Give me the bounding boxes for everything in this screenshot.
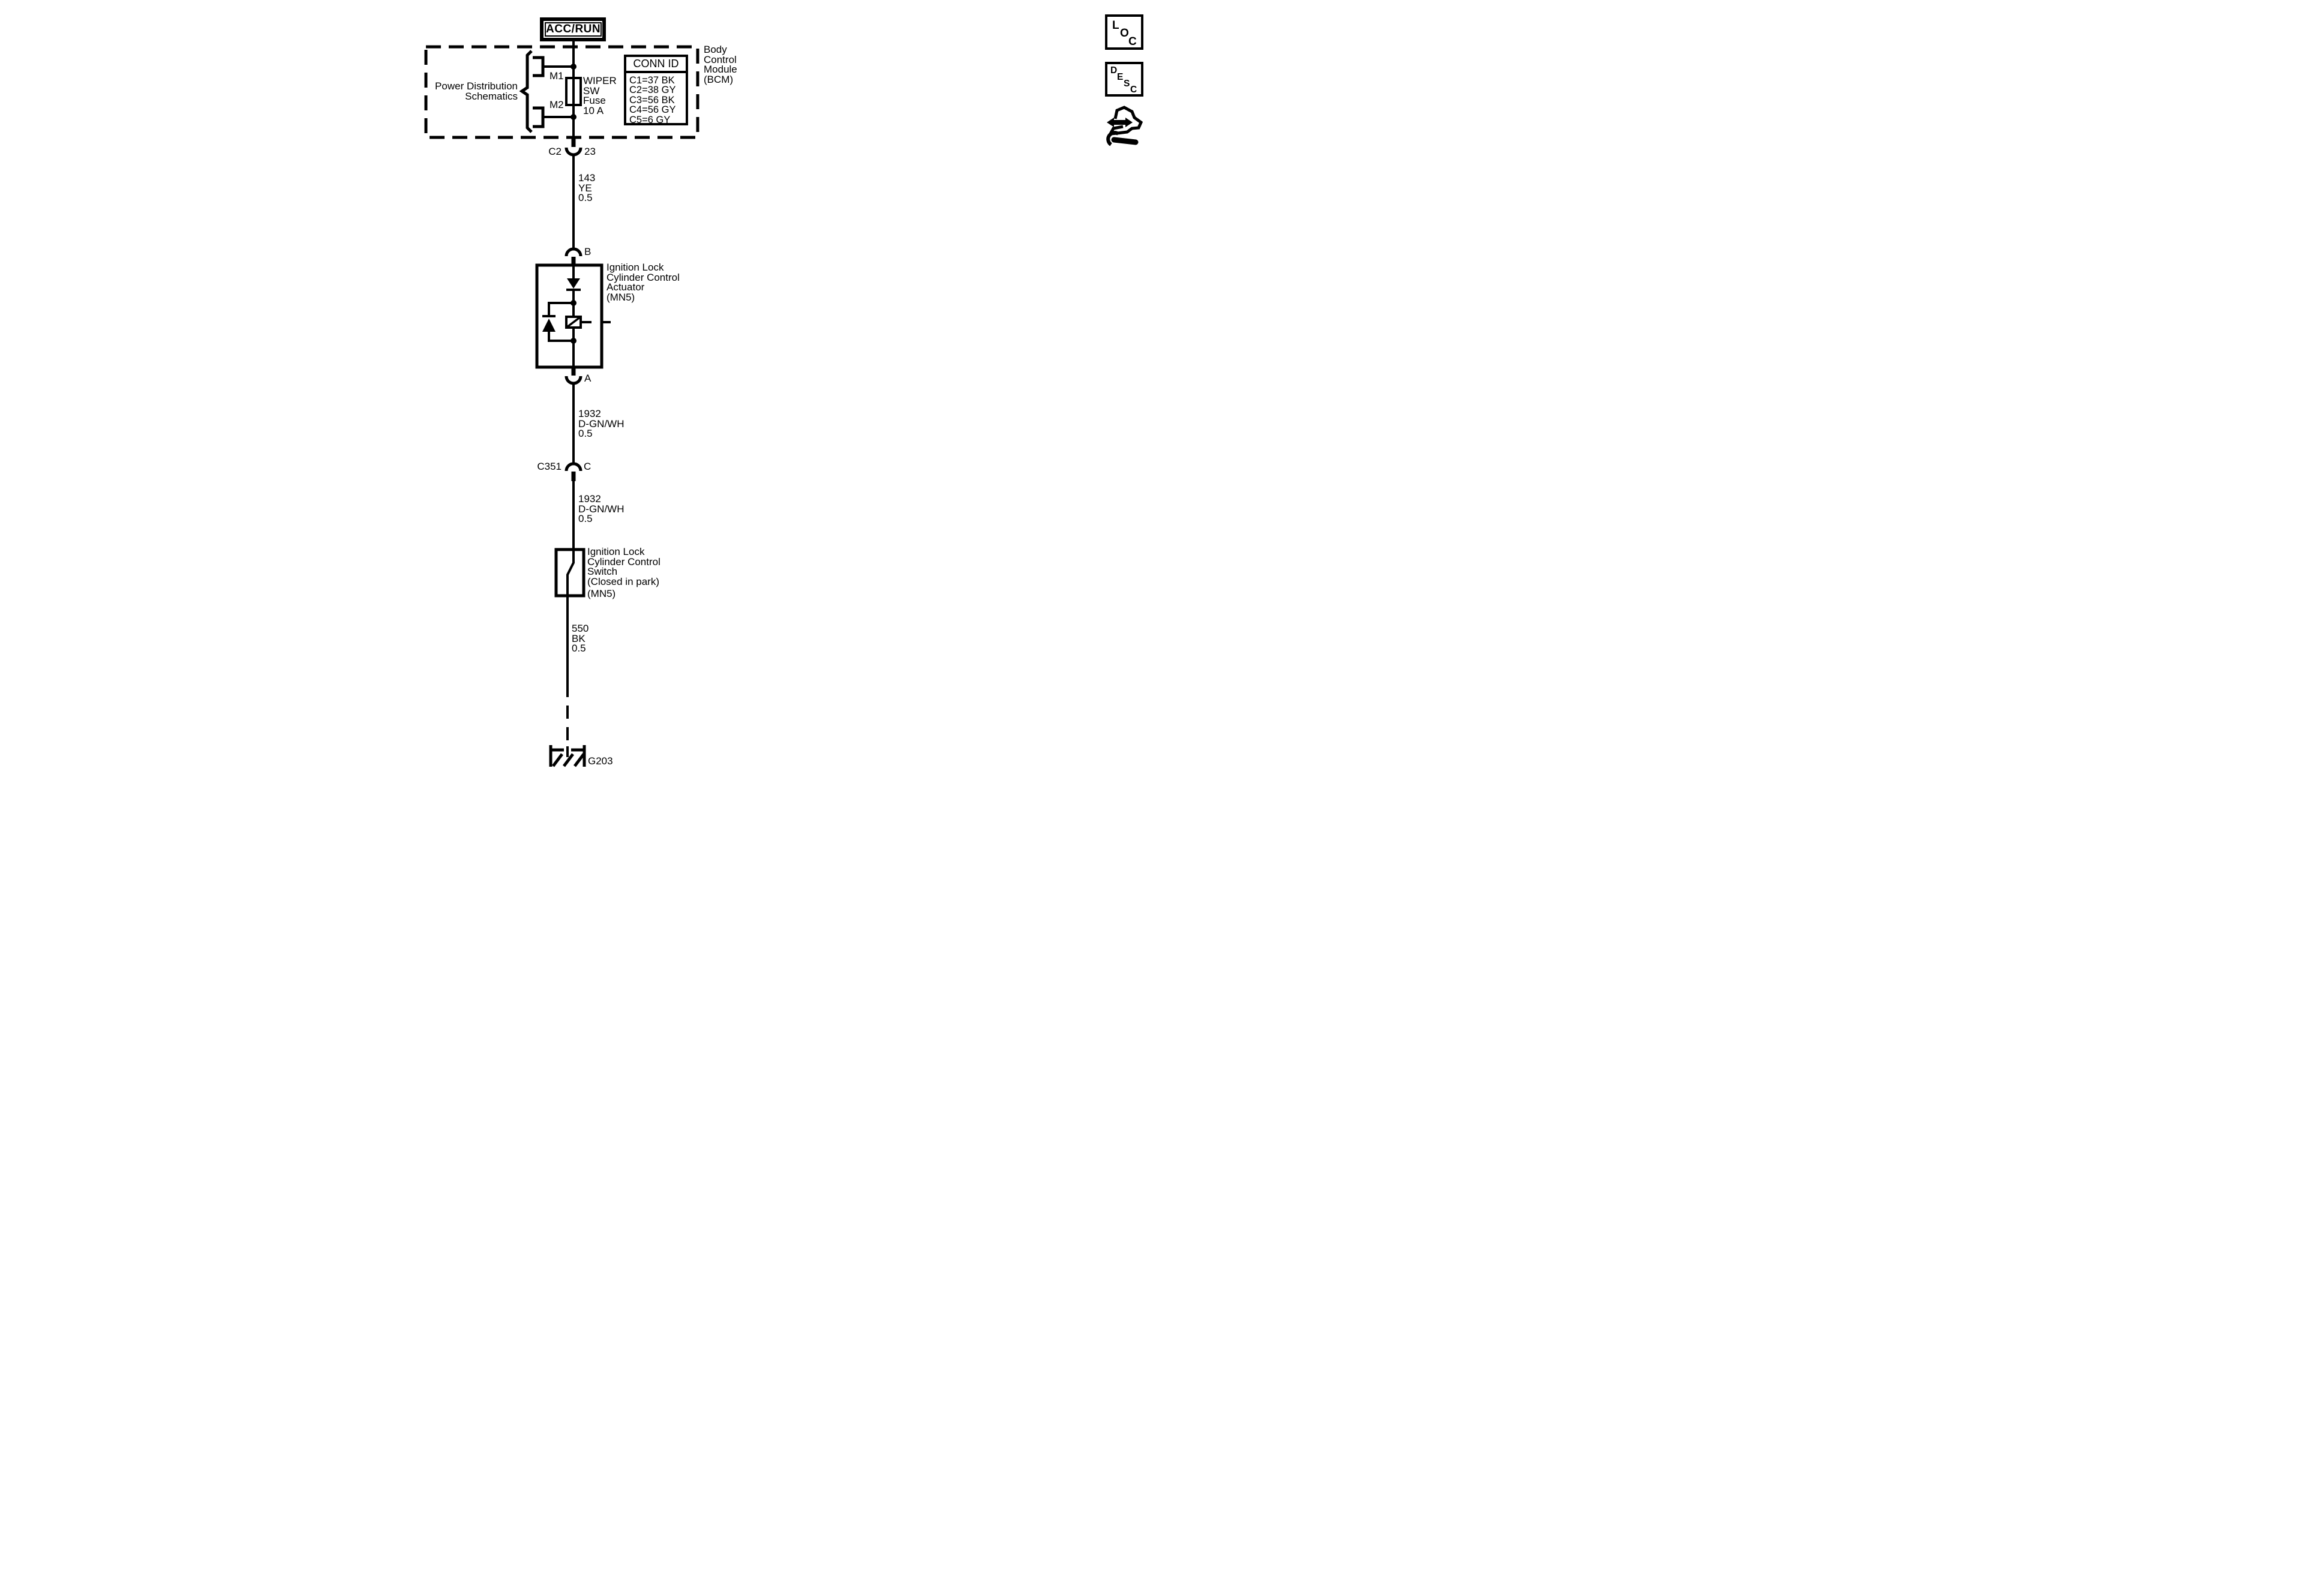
conn-id-row: C3=56 BK [629, 95, 686, 105]
desc-letter: E [1117, 72, 1123, 83]
switch-mn5-label: (MN5) [587, 589, 615, 599]
switch-label: Ignition Lock Cylinder Control Switch (C… [587, 547, 660, 587]
bcm-name-label: Body Control Module (BCM) [704, 45, 737, 85]
wire-143-label: 143 YE 0.5 [578, 173, 595, 203]
connector-c2-pin-label: 23 [584, 146, 596, 157]
wire-gauge: 0.5 [572, 644, 588, 654]
wiring-diagram-page: ACC/RUN Power Distribution Schematics M1… [0, 0, 1162, 786]
conn-id-table: CONN ID C1=37 BK C2=38 GY C3=56 BK C4=56… [624, 55, 688, 125]
wire-550-label: 550 BK 0.5 [572, 624, 588, 654]
desc-letter: S [1124, 79, 1130, 89]
power-source-label: ACC/RUN [545, 22, 602, 37]
conn-id-row: C1=37 BK [629, 76, 686, 85]
connector-c351-symbol [566, 464, 581, 481]
conn-id-row: C5=6 GY [629, 115, 686, 125]
connector-a-symbol [566, 367, 581, 383]
connector-c351-pin-label: C [584, 461, 591, 472]
actuator-box [537, 265, 611, 367]
fuse-label: WIPER SW Fuse 10 A [583, 76, 617, 116]
desc-letter: C [1130, 85, 1137, 95]
feed-m1-label: M1 [550, 71, 564, 81]
conn-id-rows: C1=37 BK C2=38 GY C3=56 BK C4=56 GY C5=6… [626, 73, 686, 125]
loc-letter: L [1112, 19, 1119, 32]
wire-1932-lower-label: 1932 D-GN/WH 0.5 [578, 494, 624, 524]
wire-1932-upper-label: 1932 D-GN/WH 0.5 [578, 409, 624, 439]
wire-gauge: 0.5 [578, 514, 624, 524]
connector-b-pin-label: B [584, 247, 591, 257]
wire-gauge: 0.5 [578, 193, 595, 203]
feed-m2-symbol [533, 108, 577, 127]
connector-c2-label: C2 [514, 146, 562, 157]
conn-id-row: C4=56 GY [629, 105, 686, 115]
switch-box [556, 550, 584, 596]
schematic-reference-brace [522, 51, 532, 132]
connector-c351-label: C351 [515, 461, 562, 472]
connector-a-pin-label: A [584, 373, 591, 383]
connector-c2-symbol [566, 137, 581, 155]
desc-letter: D [1110, 65, 1117, 76]
actuator-label: Ignition Lock Cylinder Control Actuator … [606, 263, 680, 302]
desc-button[interactable]: D E S C [1105, 62, 1143, 97]
schematic-reference-label: Power Distribution Schematics [366, 82, 518, 101]
loc-letter: C [1128, 35, 1137, 49]
navigate-arrow-icon[interactable] [1107, 107, 1141, 134]
conn-id-header: CONN ID [626, 57, 686, 73]
power-source-box: ACC/RUN [540, 17, 606, 41]
wrench-icon[interactable] [1108, 133, 1136, 145]
loc-button[interactable]: L O C [1105, 14, 1143, 50]
feed-m2-label: M2 [550, 100, 564, 110]
connector-b-symbol [566, 249, 581, 265]
loc-letter: O [1120, 27, 1129, 40]
wiring-diagram-canvas [0, 0, 1162, 786]
conn-id-row: C2=38 GY [629, 85, 686, 95]
ground-label: G203 [588, 756, 613, 766]
wire-gauge: 0.5 [578, 429, 624, 439]
